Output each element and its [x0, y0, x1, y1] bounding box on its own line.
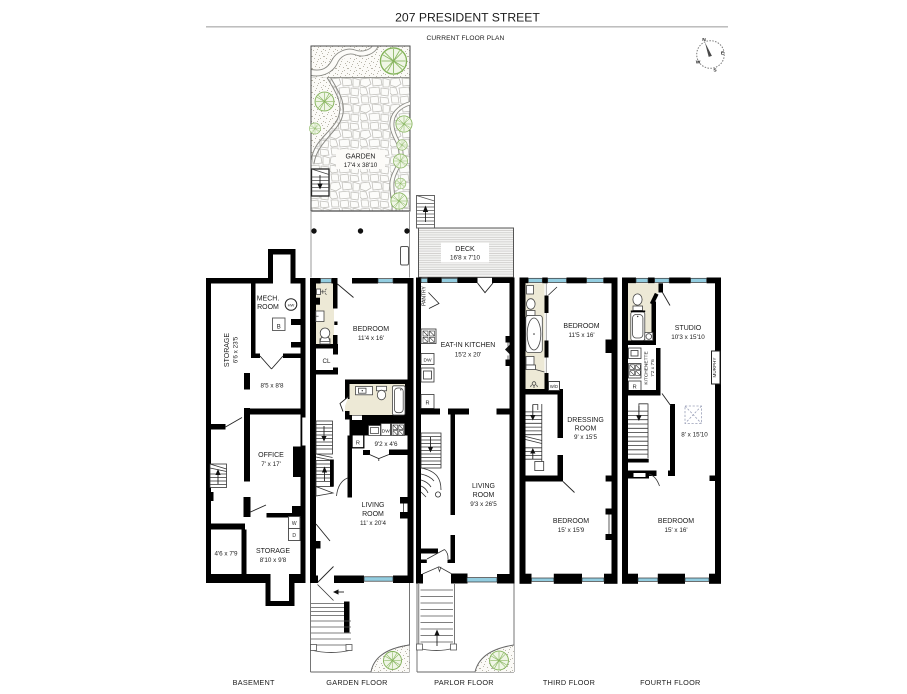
svg-text:STORAGE: STORAGE: [224, 333, 231, 367]
svg-text:PARLOR FLOOR: PARLOR FLOOR: [434, 678, 494, 687]
svg-text:16'8 x 7'10: 16'8 x 7'10: [450, 255, 481, 262]
svg-text:17'4 x 38'10: 17'4 x 38'10: [344, 162, 378, 169]
svg-text:ROOM: ROOM: [257, 304, 279, 311]
svg-text:GARDEN: GARDEN: [346, 154, 376, 161]
svg-text:KITCHENETTE: KITCHENETTE: [644, 351, 650, 384]
svg-text:8'5 x 8'8: 8'5 x 8'8: [260, 383, 284, 390]
svg-text:ROOM: ROOM: [575, 426, 597, 433]
svg-text:BEDROOM: BEDROOM: [658, 518, 694, 525]
svg-text:N: N: [702, 37, 706, 43]
svg-text:15' x 16': 15' x 16': [664, 527, 687, 534]
svg-text:EAT-IN KITCHEN: EAT-IN KITCHEN: [441, 342, 496, 349]
svg-text:207 PRESIDENT STREET: 207 PRESIDENT STREET: [395, 10, 540, 24]
svg-text:DW: DW: [382, 429, 390, 435]
svg-text:OFFICE: OFFICE: [258, 452, 284, 459]
svg-text:6'6 x 23'5: 6'6 x 23'5: [233, 336, 240, 363]
svg-text:11'5 x 16': 11'5 x 16': [568, 332, 594, 339]
svg-text:STUDIO: STUDIO: [675, 325, 702, 332]
svg-text:11' x 20'4: 11' x 20'4: [360, 520, 387, 527]
svg-text:DECK: DECK: [455, 246, 475, 253]
svg-text:R: R: [356, 441, 360, 447]
svg-text:BEDROOM: BEDROOM: [553, 518, 589, 525]
svg-text:HW: HW: [288, 303, 295, 308]
svg-text:FOURTH FLOOR: FOURTH FLOOR: [640, 678, 700, 687]
svg-text:PANTRY: PANTRY: [422, 285, 428, 305]
svg-text:BEDROOM: BEDROOM: [353, 326, 389, 333]
svg-text:CL: CL: [323, 358, 331, 365]
svg-text:9'3 x 26'5: 9'3 x 26'5: [470, 501, 497, 508]
svg-text:MURPHY: MURPHY: [712, 358, 717, 378]
svg-text:LIVING: LIVING: [362, 502, 385, 509]
svg-text:ROOM: ROOM: [473, 492, 495, 499]
svg-text:BASEMENT: BASEMENT: [233, 678, 275, 687]
svg-text:R: R: [425, 401, 429, 407]
svg-text:W: W: [292, 521, 297, 527]
svg-text:W: W: [696, 60, 701, 66]
svg-text:CURRENT FLOOR PLAN: CURRENT FLOOR PLAN: [427, 35, 505, 42]
svg-text:ROOM: ROOM: [362, 511, 384, 518]
svg-text:BEDROOM: BEDROOM: [563, 323, 599, 330]
svg-text:S: S: [713, 68, 717, 74]
svg-text:D: D: [292, 533, 296, 539]
svg-text:10'3 x 15'10: 10'3 x 15'10: [671, 334, 705, 341]
svg-text:STORAGE: STORAGE: [256, 548, 290, 555]
svg-text:B: B: [277, 325, 281, 331]
svg-text:DW: DW: [424, 358, 432, 364]
svg-text:9'2 x 4'6: 9'2 x 4'6: [374, 441, 398, 448]
svg-text:MECH.: MECH.: [257, 296, 280, 303]
svg-text:8'10 x 9'8: 8'10 x 9'8: [260, 557, 287, 564]
svg-text:7'2 x 7'6: 7'2 x 7'6: [650, 359, 656, 377]
svg-text:4'6 x 7'9: 4'6 x 7'9: [214, 551, 238, 558]
svg-text:15'2 x 20': 15'2 x 20': [455, 352, 482, 359]
svg-text:15' x 15'9: 15' x 15'9: [558, 527, 585, 534]
svg-text:8' x 15'10: 8' x 15'10: [681, 432, 708, 439]
svg-text:9' x 15'5: 9' x 15'5: [574, 434, 598, 441]
svg-text:GARDEN FLOOR: GARDEN FLOOR: [326, 678, 387, 687]
svg-text:THIRD FLOOR: THIRD FLOOR: [543, 678, 595, 687]
svg-text:11'4 x 16': 11'4 x 16': [358, 335, 384, 342]
svg-text:DRESSING: DRESSING: [567, 417, 604, 424]
svg-text:LIVING: LIVING: [472, 483, 495, 490]
svg-text:W/D: W/D: [550, 384, 558, 389]
svg-text:R: R: [633, 385, 637, 391]
svg-text:7' x 17': 7' x 17': [261, 461, 281, 468]
